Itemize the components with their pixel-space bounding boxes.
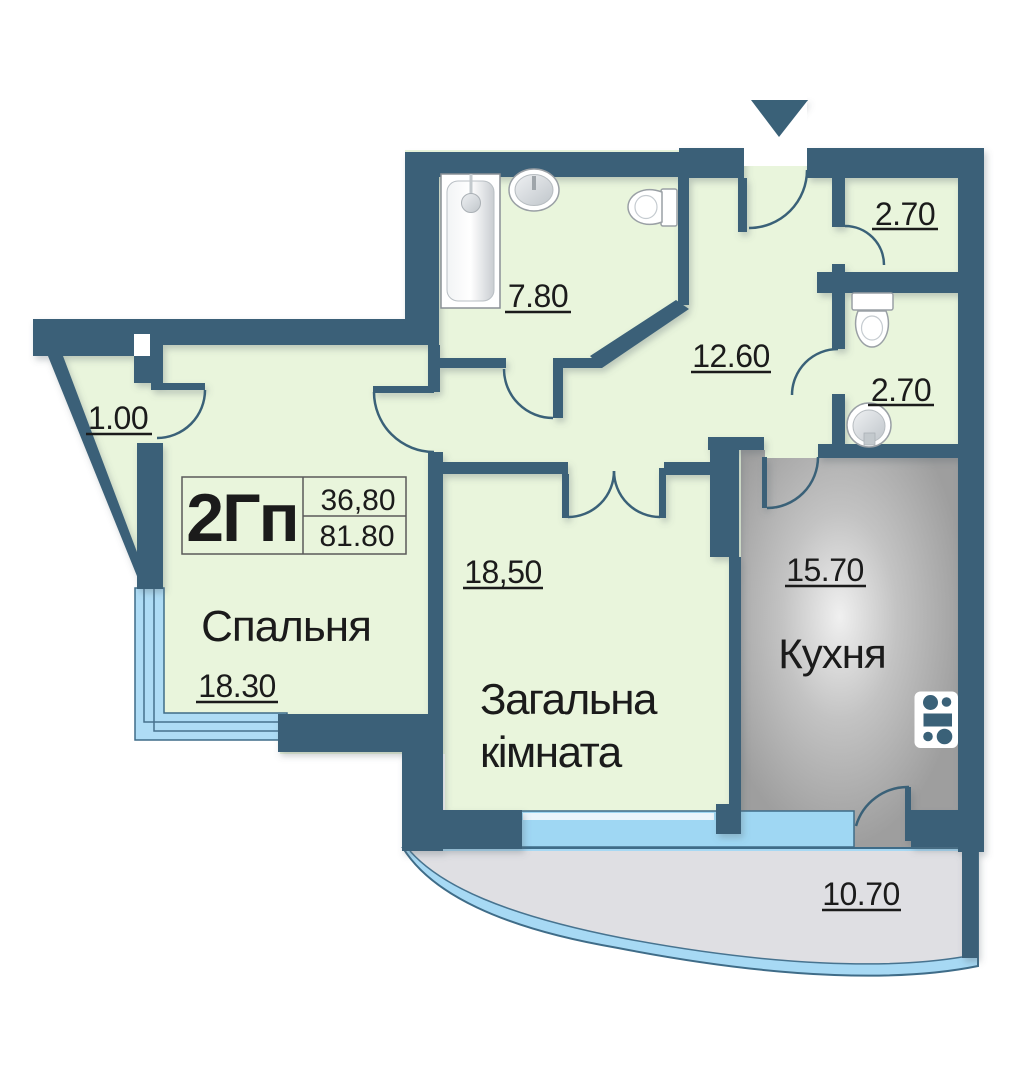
svg-text:2.70: 2.70	[871, 372, 931, 408]
svg-text:Кухня: Кухня	[778, 630, 885, 677]
svg-text:81.80: 81.80	[319, 520, 394, 553]
svg-text:36,80: 36,80	[320, 484, 395, 517]
svg-text:10.70: 10.70	[822, 876, 900, 912]
svg-text:1.00: 1.00	[88, 400, 148, 436]
svg-text:Спальня: Спальня	[201, 602, 371, 651]
svg-text:15.70: 15.70	[786, 552, 864, 588]
svg-text:2Гп: 2Гп	[186, 480, 297, 556]
svg-text:кімната: кімната	[480, 728, 623, 777]
svg-text:Загальна: Загальна	[480, 675, 658, 724]
svg-text:18.30: 18.30	[198, 668, 276, 704]
svg-text:7.80: 7.80	[508, 278, 568, 314]
svg-text:18,50: 18,50	[464, 554, 542, 590]
svg-text:2.70: 2.70	[875, 196, 935, 232]
svg-text:12.60: 12.60	[692, 338, 770, 374]
